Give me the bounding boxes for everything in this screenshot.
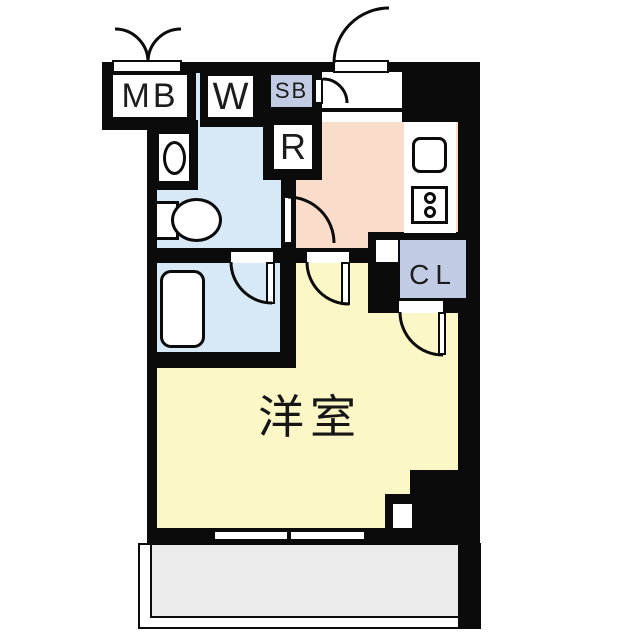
bath-door-arc <box>231 262 272 303</box>
entrance-door-arc <box>334 8 389 63</box>
closet-door-arc <box>400 312 443 355</box>
floor-plan: MB W SB R CL 洋 <box>0 0 640 640</box>
western-room-label: 洋室 <box>230 390 390 444</box>
meter-box-door-arc-left <box>115 29 148 62</box>
room-door-arc <box>307 262 349 304</box>
meter-box-door-arc-right <box>148 29 181 62</box>
door-arcs-layer <box>0 0 640 640</box>
shoe-box-door-arc <box>323 79 347 103</box>
washroom-door-arc <box>288 197 334 243</box>
